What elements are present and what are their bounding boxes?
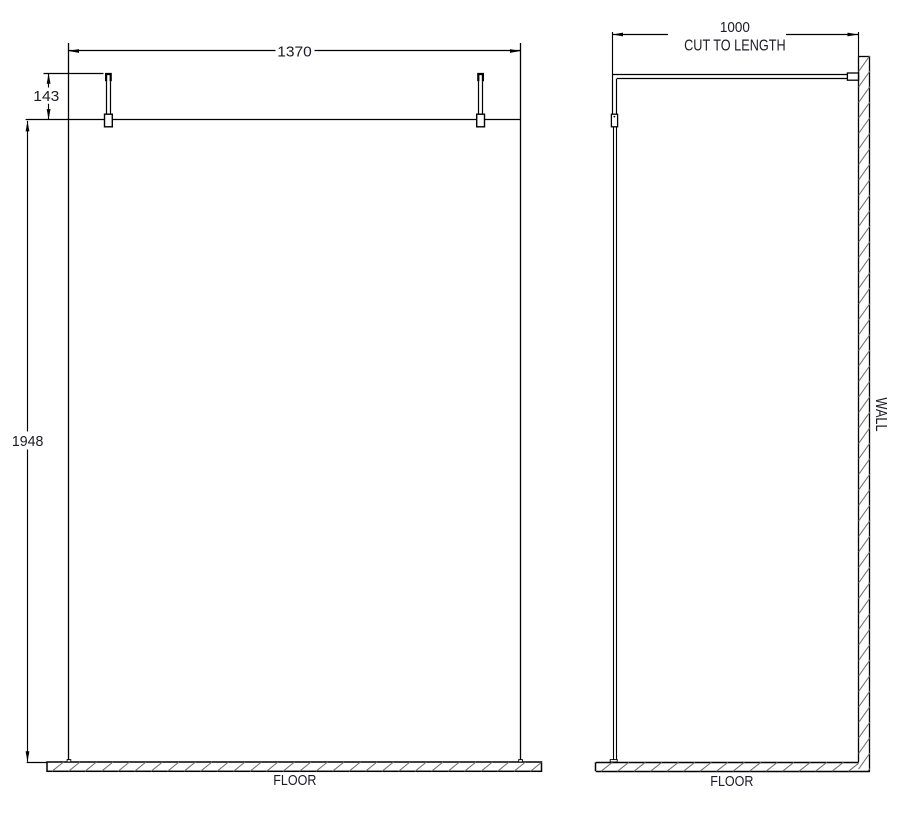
svg-text:143: 143 [33,88,59,105]
svg-text:1000: 1000 [720,19,750,36]
svg-text:WALL: WALL [872,398,889,432]
svg-text:1370: 1370 [277,43,312,60]
svg-text:1948: 1948 [12,433,44,450]
svg-text:CUT TO LENGTH: CUT TO LENGTH [684,37,786,54]
svg-text:FLOOR: FLOOR [273,772,316,789]
svg-text:FLOOR: FLOOR [710,773,753,790]
